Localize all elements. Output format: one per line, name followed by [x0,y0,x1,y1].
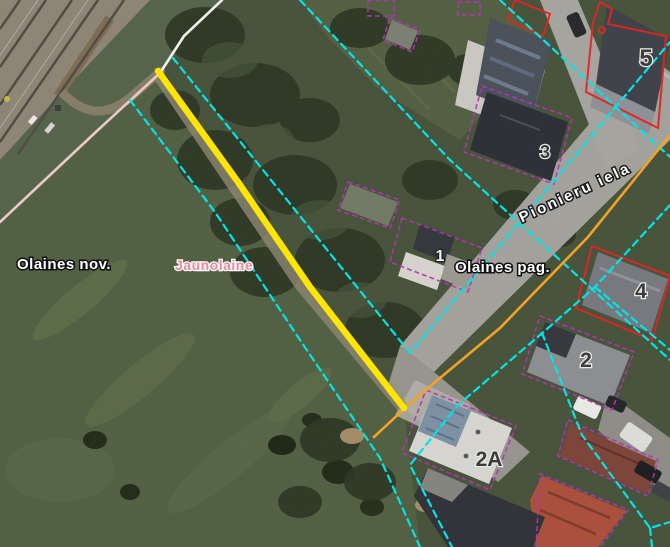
house-number-5: 5 [639,45,652,72]
house-number-2a: 2A [476,448,503,471]
house-number-3: 3 [540,142,550,162]
map-viewport[interactable]: Olaines nov. Jaunolaine Olaines pag. Pio… [0,0,670,547]
label-olaines-pag: Olaines pag. [455,259,550,276]
photo-grain [0,0,670,547]
aerial-photo[interactable] [0,0,670,547]
house-number-2: 2 [580,349,592,372]
label-olaines-nov: Olaines nov. [17,256,111,273]
label-jaunolaine: Jaunolaine [175,257,253,273]
house-number-1: 1 [436,248,445,265]
house-number-4: 4 [635,280,647,303]
